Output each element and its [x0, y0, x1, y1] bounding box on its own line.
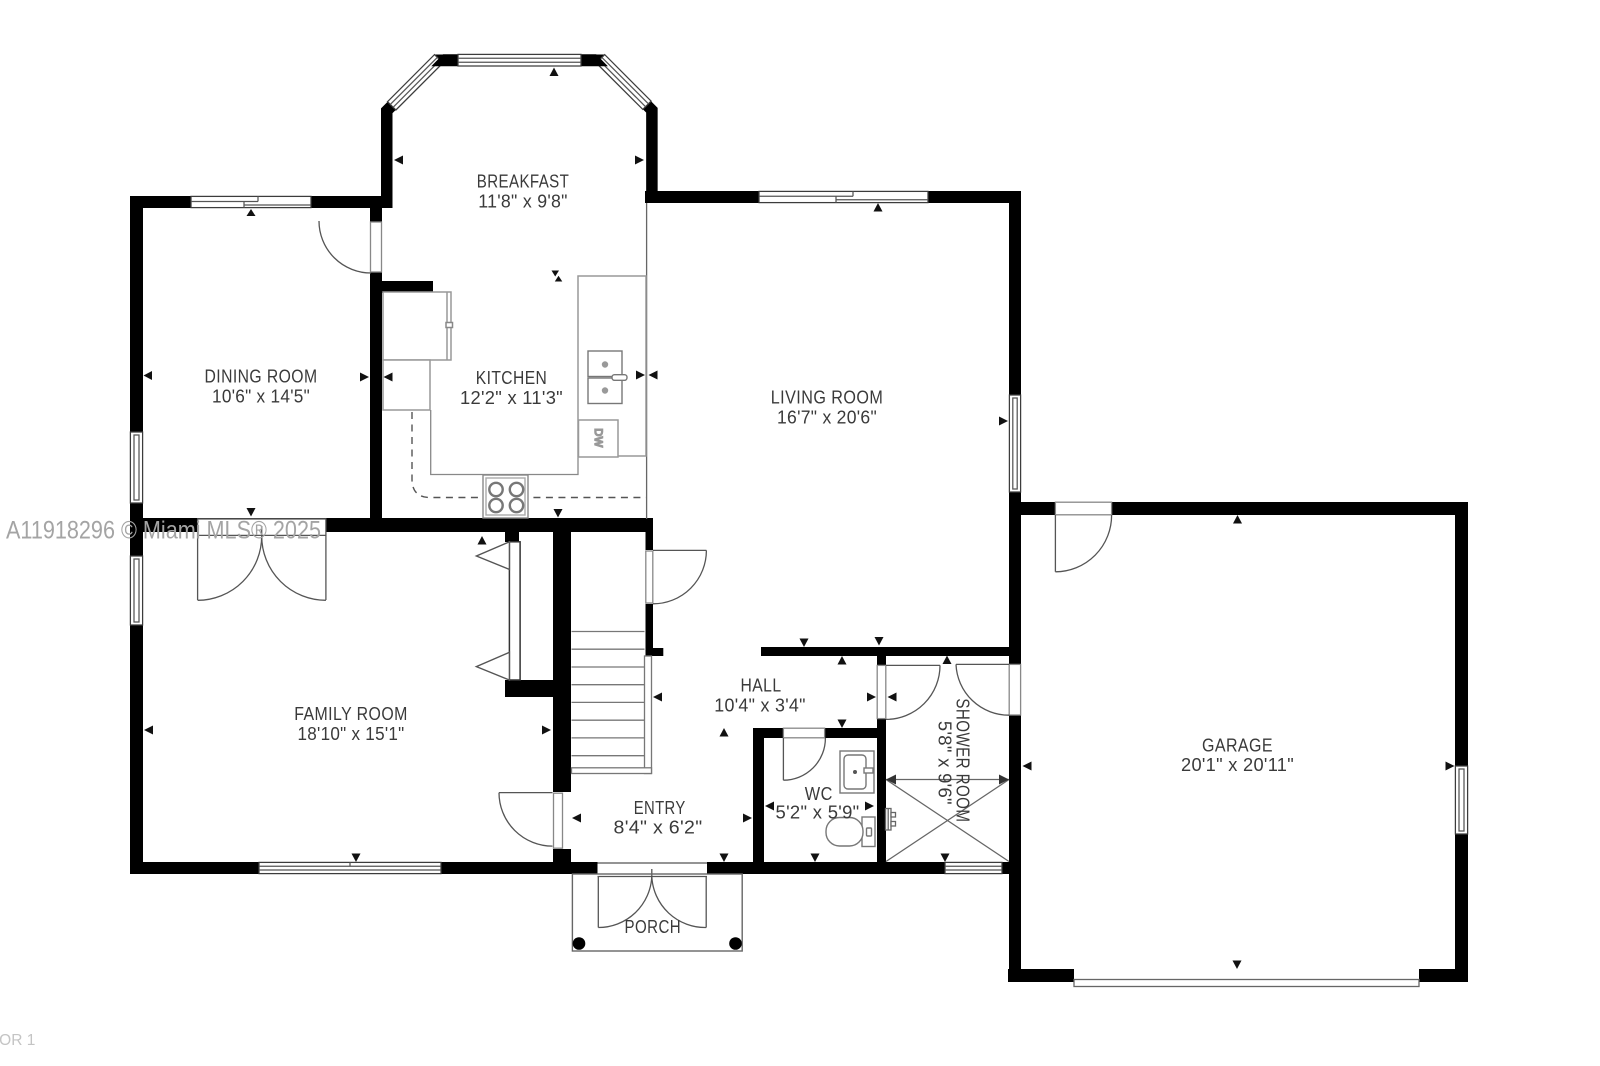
svg-text:5'2" x 5'9": 5'2" x 5'9": [776, 802, 860, 823]
svg-text:FAMILY ROOM: FAMILY ROOM: [294, 703, 408, 724]
svg-text:10'4" x 3'4": 10'4" x 3'4": [714, 695, 806, 716]
svg-text:A11918296 © Miami MLS® 2025: A11918296 © Miami MLS® 2025: [6, 517, 321, 545]
svg-text:KITCHEN: KITCHEN: [476, 367, 548, 388]
svg-text:BREAKFAST: BREAKFAST: [477, 171, 570, 192]
svg-text:DINING ROOM: DINING ROOM: [205, 366, 318, 387]
svg-text:11'8" x 9'8": 11'8" x 9'8": [478, 191, 568, 212]
svg-text:DW: DW: [592, 428, 604, 447]
svg-text:GARAGE: GARAGE: [1202, 735, 1273, 756]
svg-text:FLOOR 1: FLOOR 1: [0, 1032, 35, 1049]
svg-text:12'2" x 11'3": 12'2" x 11'3": [460, 387, 563, 408]
svg-text:18'10" x 15'1": 18'10" x 15'1": [298, 723, 405, 744]
svg-text:5'8" x 9'6": 5'8" x 9'6": [935, 721, 956, 805]
svg-text:LIVING ROOM: LIVING ROOM: [771, 387, 884, 408]
svg-text:20'1" x 20'11": 20'1" x 20'11": [1181, 754, 1294, 775]
svg-text:16'7" x 20'6": 16'7" x 20'6": [777, 407, 877, 428]
svg-text:HALL: HALL: [741, 675, 782, 696]
svg-text:ENTRY: ENTRY: [634, 797, 686, 818]
svg-text:10'6" x 14'5": 10'6" x 14'5": [212, 386, 310, 407]
svg-text:8'4" x 6'2": 8'4" x 6'2": [614, 817, 703, 838]
svg-text:PORCH: PORCH: [625, 916, 682, 937]
